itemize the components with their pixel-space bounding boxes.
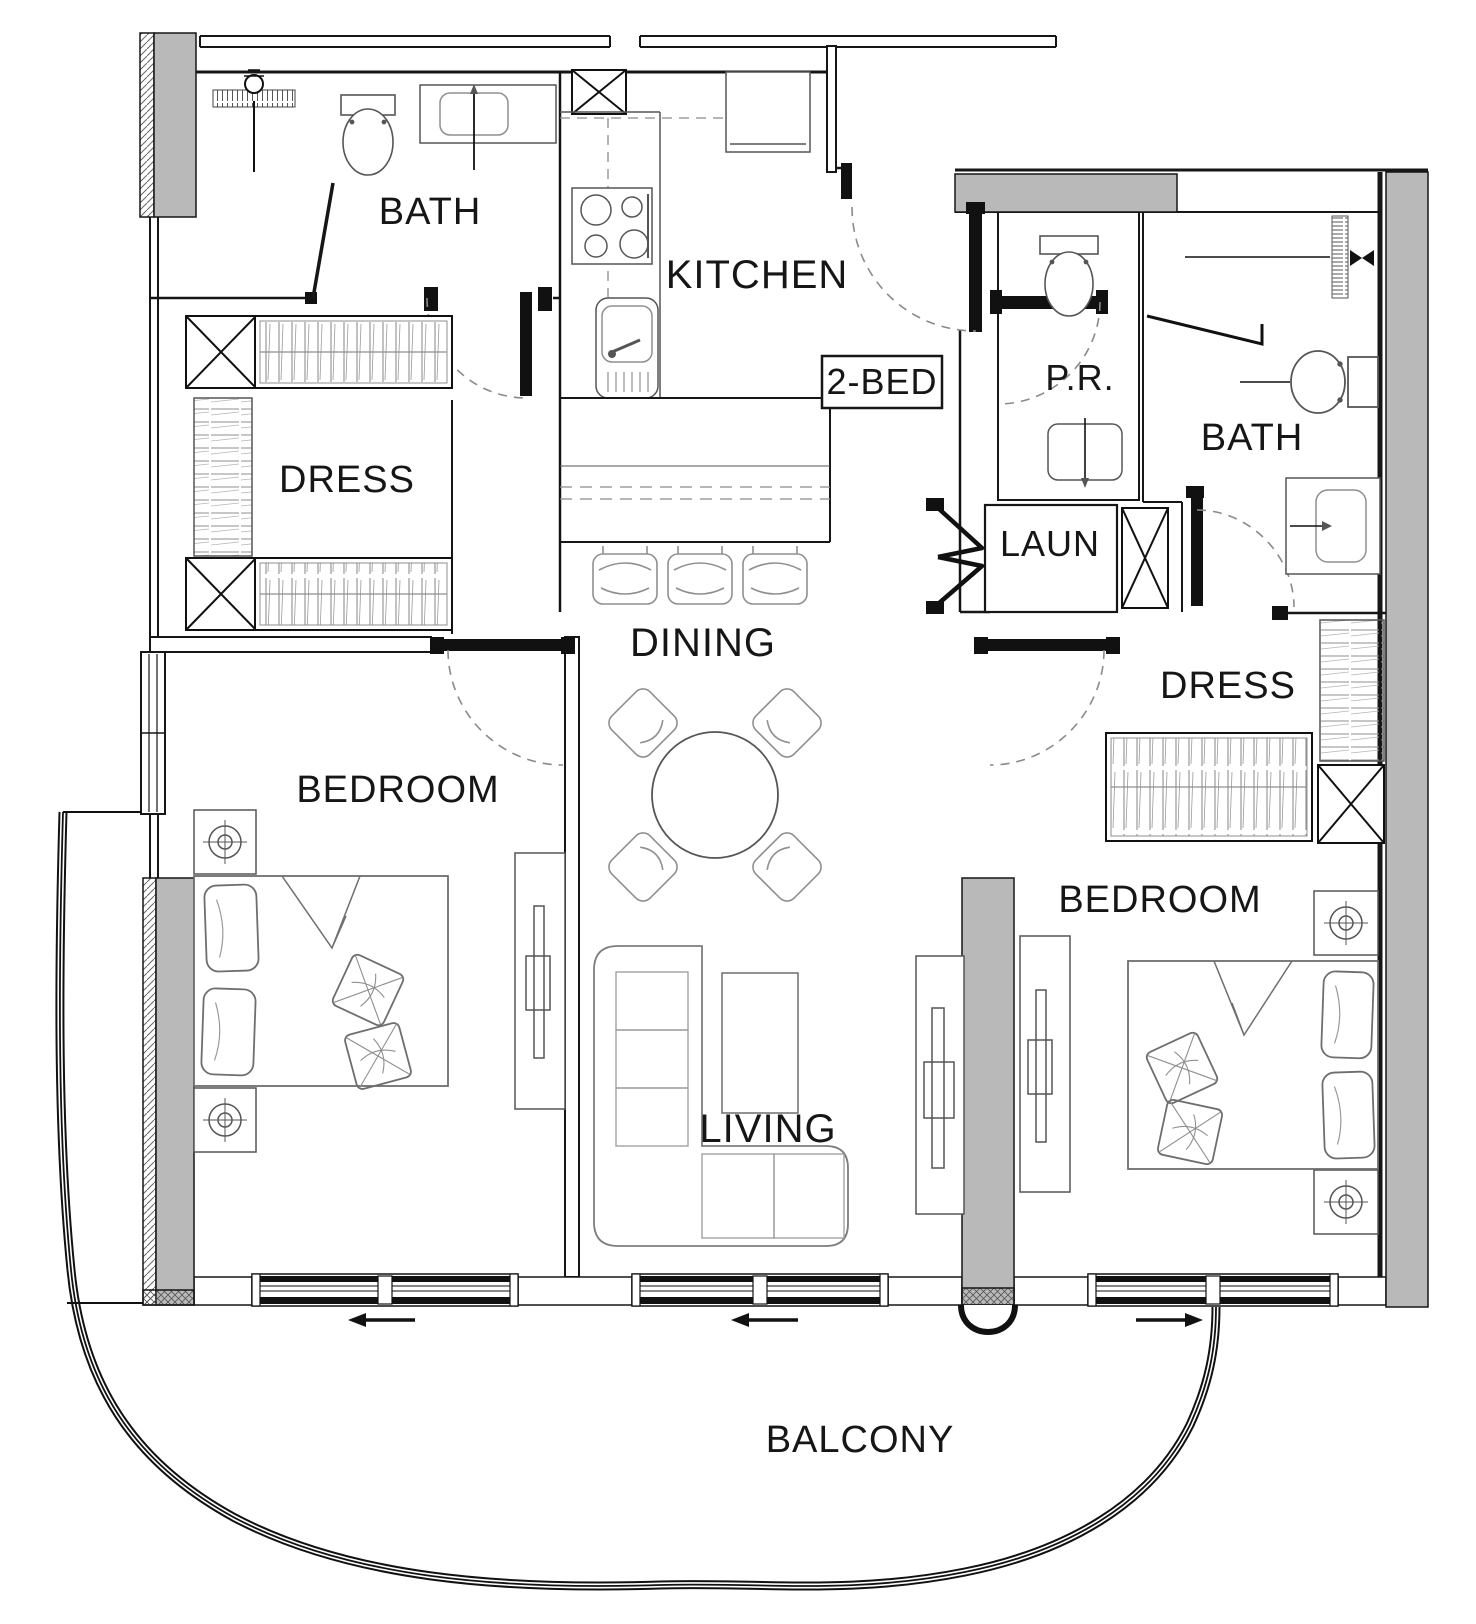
bedroom1-door-swing-arc: [448, 650, 563, 765]
bar-stool: [593, 546, 657, 604]
double-bed: [194, 876, 448, 1090]
dining-chair: [749, 829, 825, 905]
wardrobe-hangers: [1106, 733, 1312, 841]
shelf-unit: [1320, 620, 1384, 761]
shaft-box: [186, 558, 256, 630]
unit-type-label: 2-BED: [826, 361, 937, 402]
bedroom2-door-swing-arc: [990, 650, 1104, 765]
wardrobe-dresser: [515, 853, 565, 1109]
room-label-bedroom-1: BEDROOM: [296, 769, 499, 811]
coffee-table: [722, 973, 798, 1113]
wall-hatch-bottom-left: [143, 1290, 194, 1305]
shaft-box-kitchen: [572, 70, 626, 114]
windows-bottom: [252, 1274, 1338, 1327]
gray-wall-right: [1386, 172, 1428, 1307]
gray-wall-pr-top: [955, 174, 1177, 212]
sliding-window: [252, 1274, 518, 1327]
toilet-icon: [341, 95, 395, 175]
bar-stool: [743, 546, 807, 604]
wardrobe-dresser: [1020, 936, 1070, 1192]
toilet-icon: [1240, 351, 1378, 413]
hatched-wall-top-left: [140, 33, 154, 217]
bath1-door: [305, 183, 333, 304]
sink-icon: [1048, 418, 1122, 488]
bedroom2-furniture: [1020, 891, 1378, 1234]
bedroom1-furniture: [194, 810, 565, 1152]
tv-unit: [916, 956, 964, 1214]
nightstand: [194, 1088, 256, 1152]
gray-wall-bedroom1: [156, 878, 194, 1305]
gray-pillar-center: [962, 878, 1014, 1305]
dining-chair: [605, 829, 681, 905]
sink-icon: [420, 84, 556, 170]
room-label-laundry: LAUN: [1000, 523, 1100, 564]
shaft-box: [1318, 765, 1384, 843]
shelf-unit: [194, 398, 252, 556]
room-label-pr: P.R.: [1045, 357, 1114, 398]
room-label-living: LIVING: [699, 1107, 836, 1151]
bath2-door-swing-arc: [1197, 510, 1294, 607]
nightstand: [194, 810, 256, 874]
fridge-icon: [726, 72, 810, 152]
gray-wall-top-left: [154, 33, 196, 217]
room-label-balcony: BALCONY: [766, 1419, 955, 1461]
kitchen-fixtures: [560, 70, 830, 604]
dining-furniture: [605, 685, 825, 905]
bar-stool: [668, 546, 732, 604]
shower-icon: [213, 70, 295, 172]
vanity-sink-icon: [1286, 478, 1380, 574]
wardrobe-hangers: [255, 316, 452, 388]
unit-type-tag: 2-BED: [822, 356, 942, 408]
laundry-bifold-doors: [926, 498, 982, 614]
floor-plan: BATH KITCHEN DRESS DINING BEDROOM LIVING…: [0, 0, 1476, 1624]
room-label-dress-2: DRESS: [1160, 665, 1296, 707]
shower-icon: [1185, 216, 1374, 298]
double-bed: [1128, 961, 1378, 1169]
bedroom2-door: [974, 637, 1120, 765]
entry-door-swing-arc: [852, 207, 976, 331]
bath2-door: [1186, 486, 1294, 620]
window-left-wall: [141, 652, 165, 814]
hatched-wall-bedroom1: [143, 878, 156, 1305]
room-label-bath-1: BATH: [379, 191, 482, 233]
stove-icon: [572, 188, 652, 264]
wardrobe-hangers: [255, 558, 452, 630]
floor-plan-page: BATH KITCHEN DRESS DINING BEDROOM LIVING…: [0, 0, 1476, 1624]
pillar-hatch: [962, 1288, 1014, 1305]
dress2-fixtures: [1106, 620, 1384, 843]
dining-table: [652, 732, 778, 858]
room-label-kitchen: KITCHEN: [666, 253, 849, 297]
dining-chair: [749, 685, 825, 761]
room-label-dress-1: DRESS: [279, 459, 415, 501]
room-label-bath-2: BATH: [1201, 417, 1304, 459]
living-furniture: [594, 946, 964, 1246]
shower-screen: [1147, 316, 1262, 344]
shaft-box-laundry: [1122, 508, 1168, 608]
sliding-window: [632, 1274, 888, 1327]
dining-chair: [605, 685, 681, 761]
nightstand: [1314, 1170, 1378, 1234]
room-label-dining: DINING: [630, 621, 776, 665]
kitchen-sink-icon: [596, 298, 658, 398]
sectional-sofa: [594, 946, 848, 1246]
bath1-fixtures: [213, 70, 556, 175]
nightstand: [1314, 891, 1378, 955]
room-label-bedroom-2: BEDROOM: [1058, 879, 1261, 921]
bedroom1-door: [430, 637, 575, 765]
island-counter: [560, 398, 830, 542]
balcony-column-arc: [961, 1305, 1015, 1332]
shaft-box: [186, 316, 256, 388]
